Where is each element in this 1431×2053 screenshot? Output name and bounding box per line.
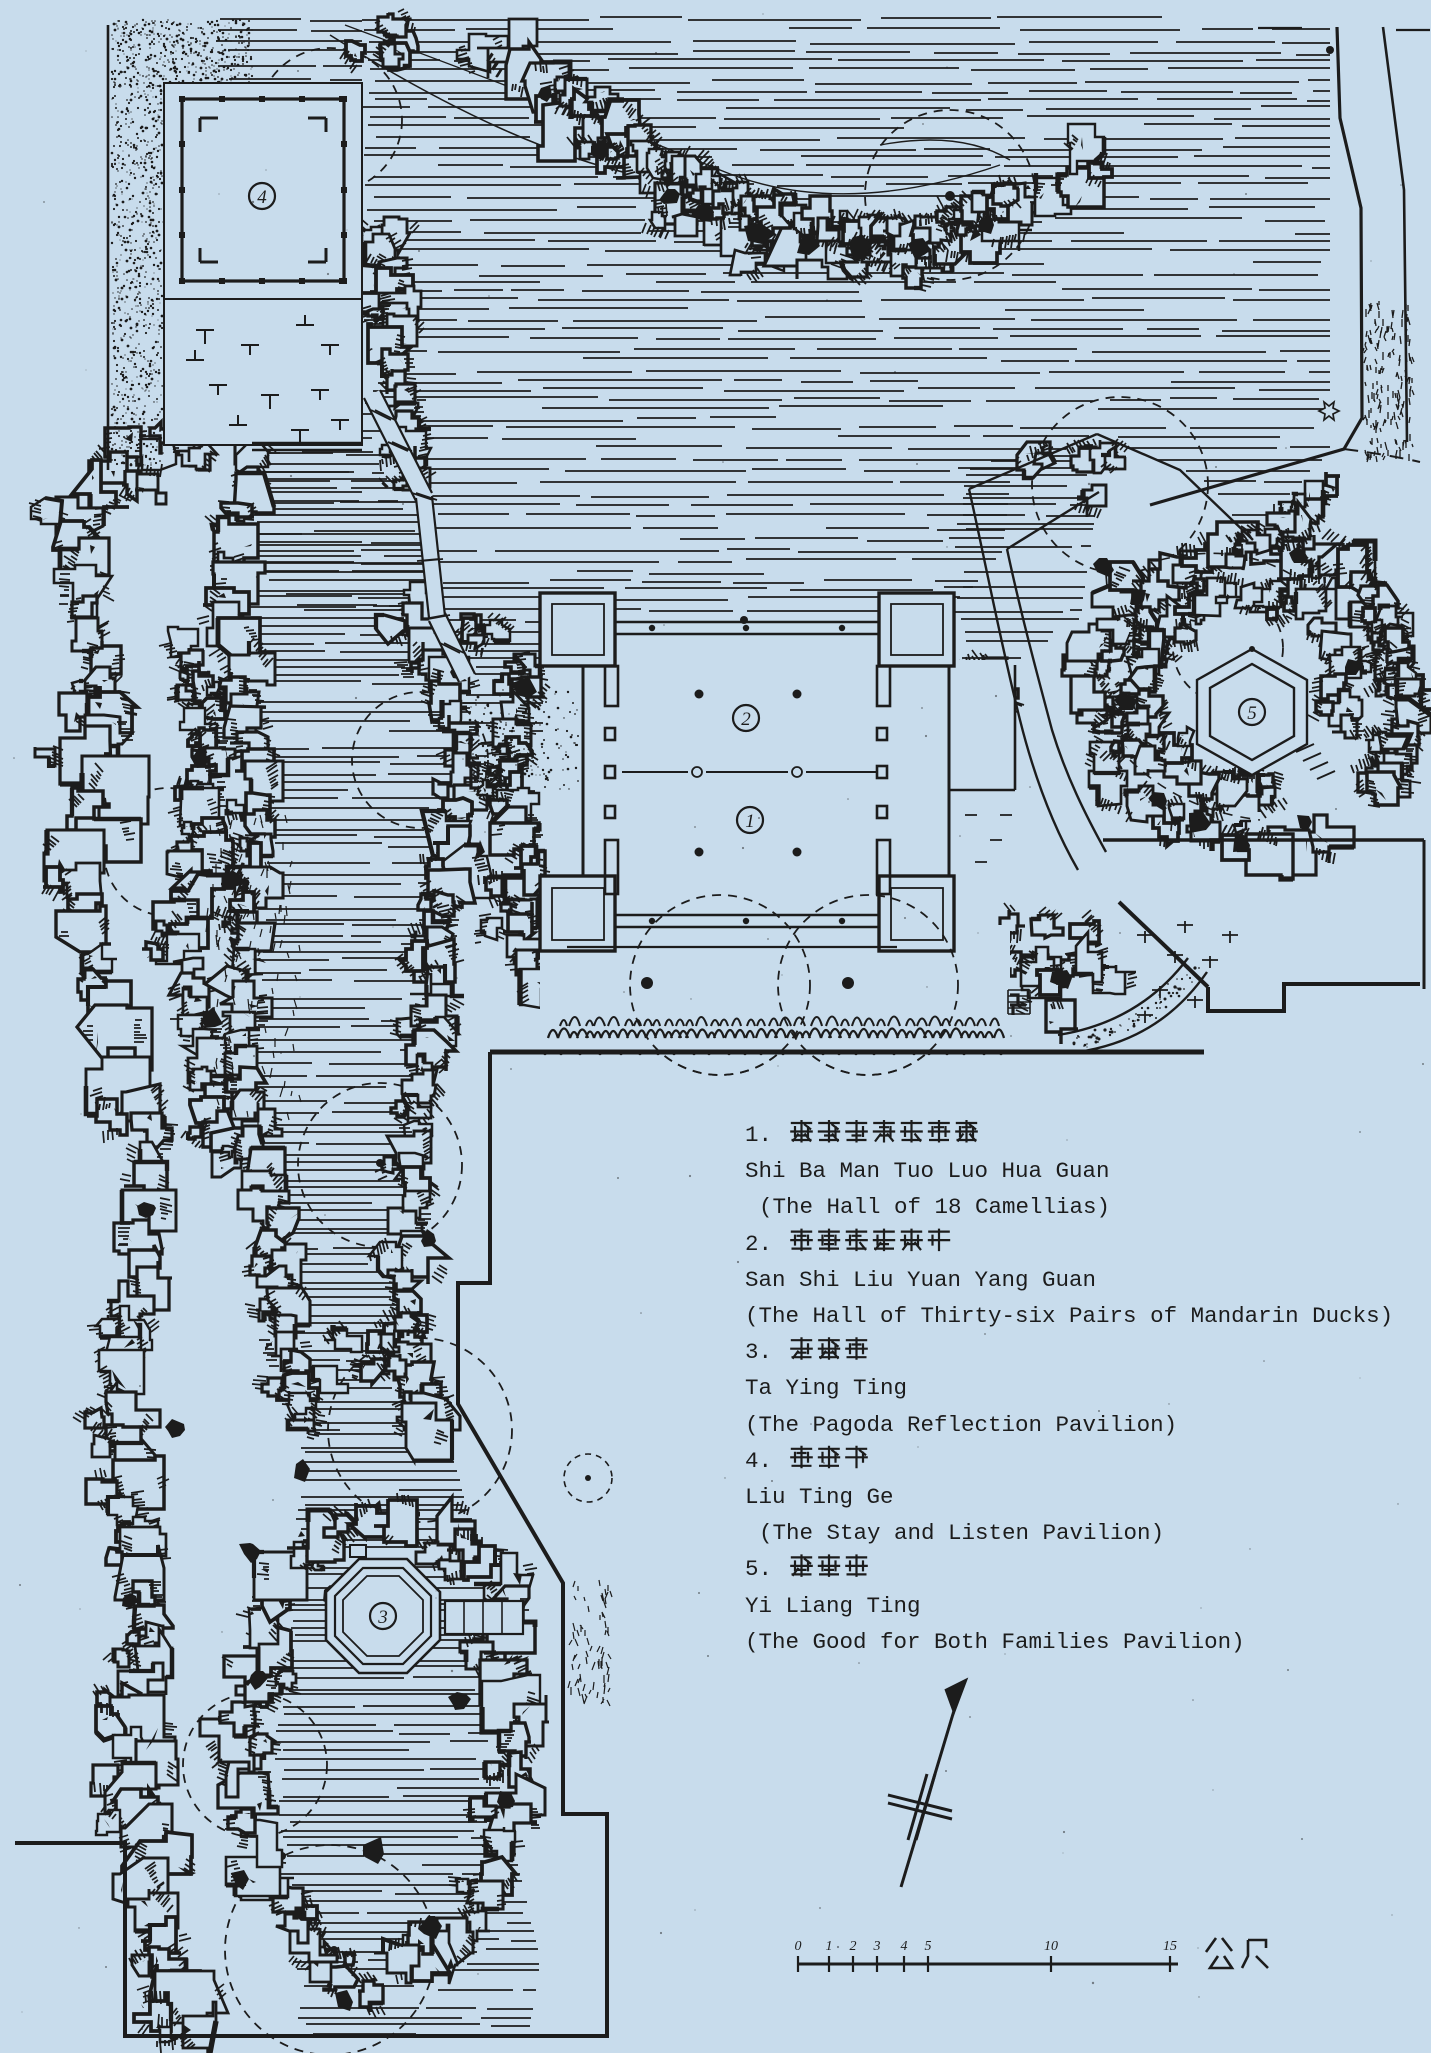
svg-text:3: 3 (377, 1607, 388, 1628)
svg-text:3: 3 (873, 1939, 881, 1954)
svg-text:(The Hall of 18 Camellias): (The Hall of 18 Camellias) (759, 1194, 1110, 1220)
svg-text:0: 0 (795, 1939, 802, 1954)
svg-text:3.: 3. (745, 1339, 772, 1365)
svg-text:5: 5 (925, 1939, 932, 1954)
svg-text:2.: 2. (745, 1231, 772, 1257)
svg-text:Liu Ting Ge: Liu Ting Ge (745, 1484, 894, 1510)
svg-text:4.: 4. (745, 1448, 772, 1474)
svg-text:Ta Ying Ting: Ta Ying Ting (745, 1375, 907, 1401)
svg-text:Shi Ba Man Tuo Luo Hua Guan: Shi Ba Man Tuo Luo Hua Guan (745, 1158, 1110, 1184)
svg-text:San Shi Liu Yuan Yang Guan: San Shi Liu Yuan Yang Guan (745, 1267, 1096, 1293)
svg-text:2: 2 (850, 1939, 857, 1954)
svg-text:10: 10 (1044, 1939, 1058, 1954)
svg-text:4: 4 (901, 1939, 908, 1954)
svg-text:(The Pagoda Reflection Pavilio: (The Pagoda Reflection Pavilion) (745, 1412, 1177, 1438)
svg-text:1: 1 (745, 811, 755, 832)
svg-text:2: 2 (741, 709, 751, 730)
svg-text:15: 15 (1163, 1939, 1177, 1954)
svg-text:(The Stay and Listen Pavilion): (The Stay and Listen Pavilion) (759, 1520, 1164, 1546)
svg-text:1: 1 (826, 1939, 833, 1954)
svg-text:Yi Liang Ting: Yi Liang Ting (745, 1593, 921, 1619)
svg-text:5.: 5. (745, 1556, 772, 1582)
svg-text:(The Good for Both Families Pa: (The Good for Both Families Pavilion) (745, 1629, 1245, 1655)
svg-text:(The Hall of Thirty-six Pairs: (The Hall of Thirty-six Pairs of Mandari… (745, 1303, 1393, 1329)
svg-text:5: 5 (1247, 703, 1257, 724)
svg-text:4: 4 (257, 187, 267, 208)
svg-text:1.: 1. (745, 1122, 772, 1148)
